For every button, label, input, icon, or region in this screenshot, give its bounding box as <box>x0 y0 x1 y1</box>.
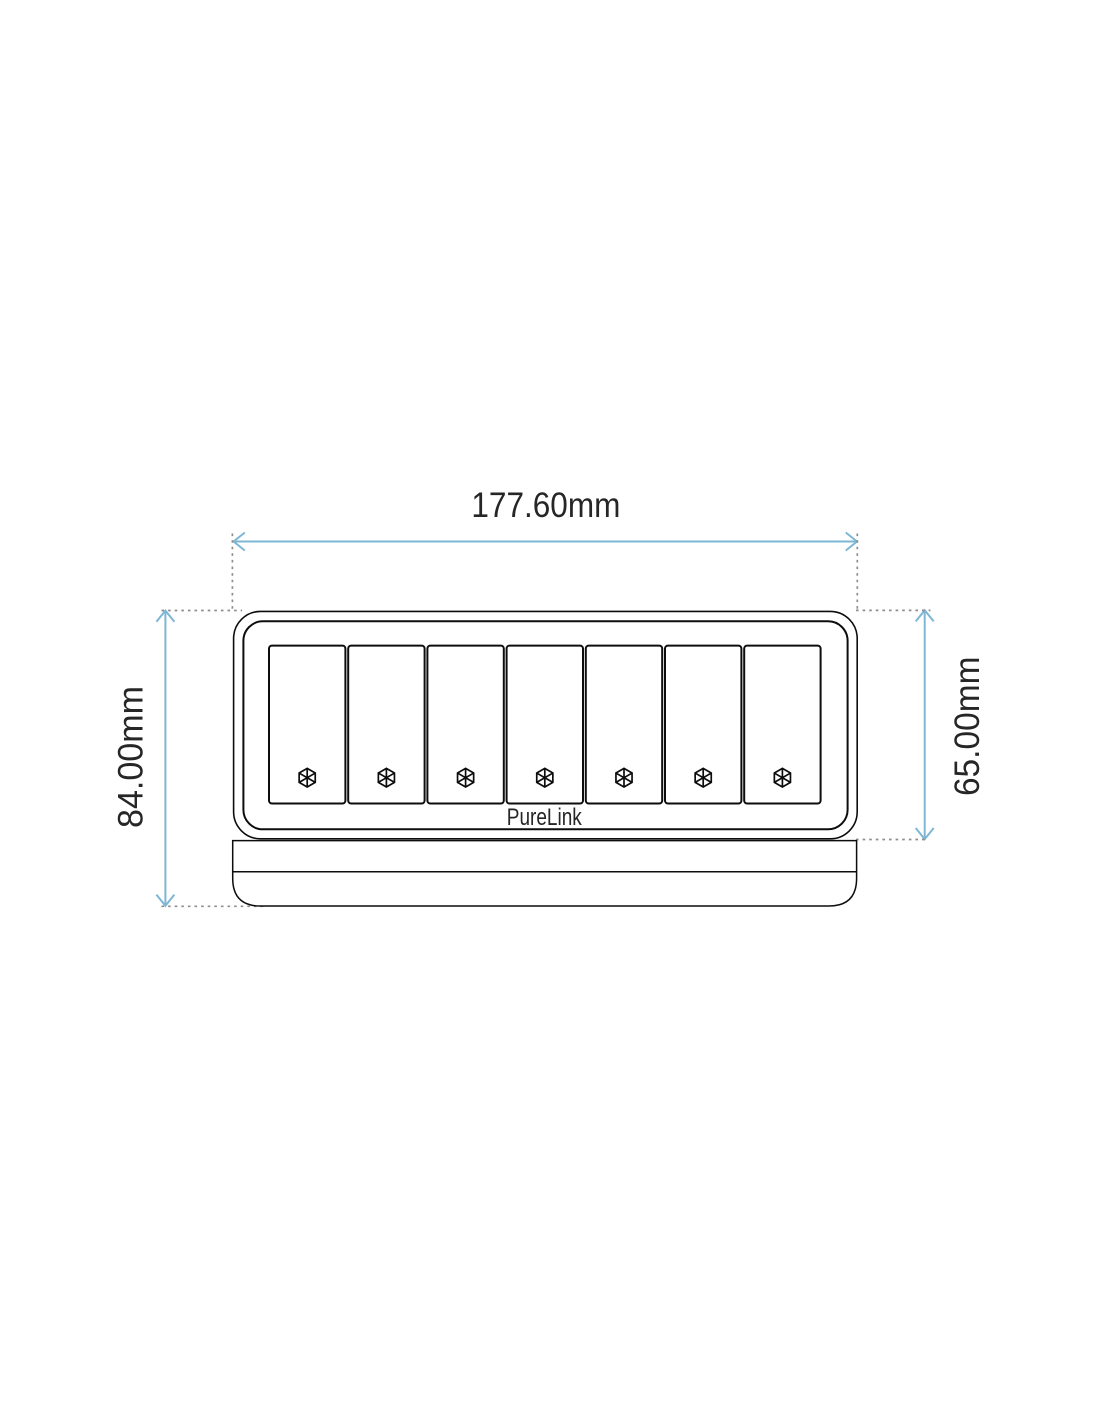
svg-text:65.00mm: 65.00mm <box>947 657 987 797</box>
svg-text:84.00mm: 84.00mm <box>111 686 151 828</box>
svg-text:177.60mm: 177.60mm <box>471 485 620 525</box>
svg-text:PureLink: PureLink <box>507 804 583 831</box>
